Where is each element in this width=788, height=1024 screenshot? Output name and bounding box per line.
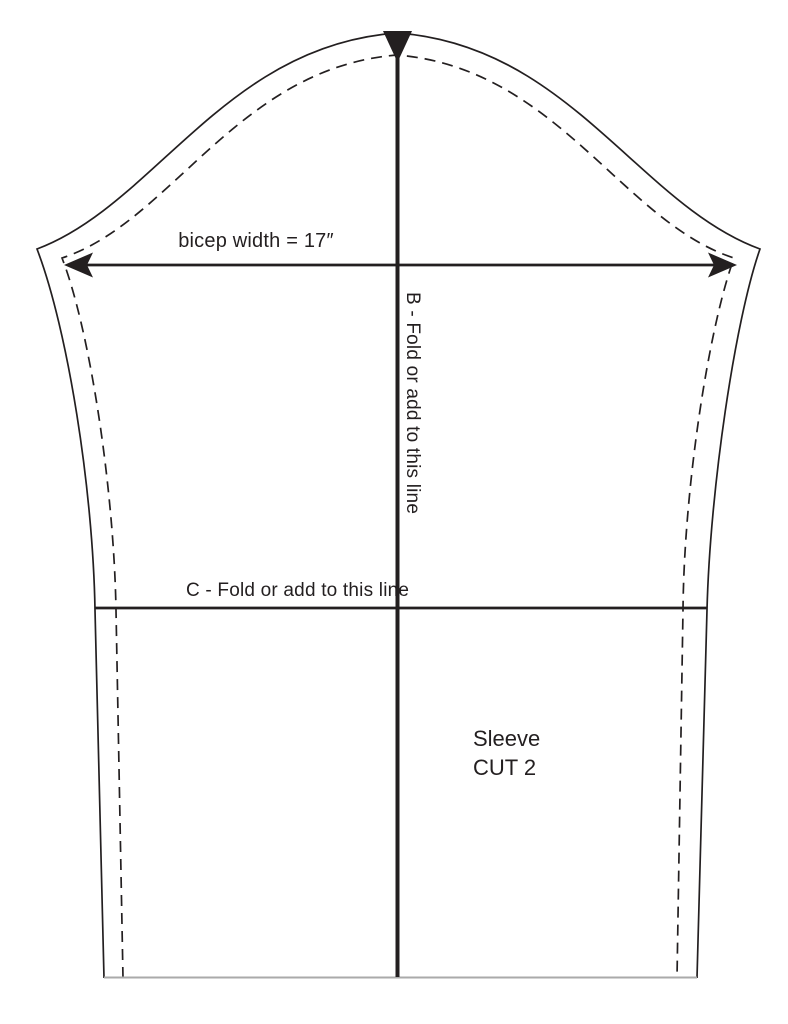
cut-instruction-label: CUT 2	[473, 754, 540, 783]
sleeve-pattern-diagram	[0, 0, 788, 1024]
sewing-pattern-page: bicep width = 17″ B - Fold or add to thi…	[0, 0, 788, 1024]
fold-line-b-label: B - Fold or add to this line	[401, 292, 423, 514]
bicep-width-arrow	[64, 253, 737, 278]
cap-notch-icon	[383, 31, 412, 58]
bicep-width-label: bicep width = 17″	[167, 230, 345, 253]
piece-name-label: Sleeve	[473, 725, 540, 754]
piece-info-block: Sleeve CUT 2	[473, 725, 540, 782]
fold-line-c-label: C - Fold or add to this line	[186, 580, 409, 602]
